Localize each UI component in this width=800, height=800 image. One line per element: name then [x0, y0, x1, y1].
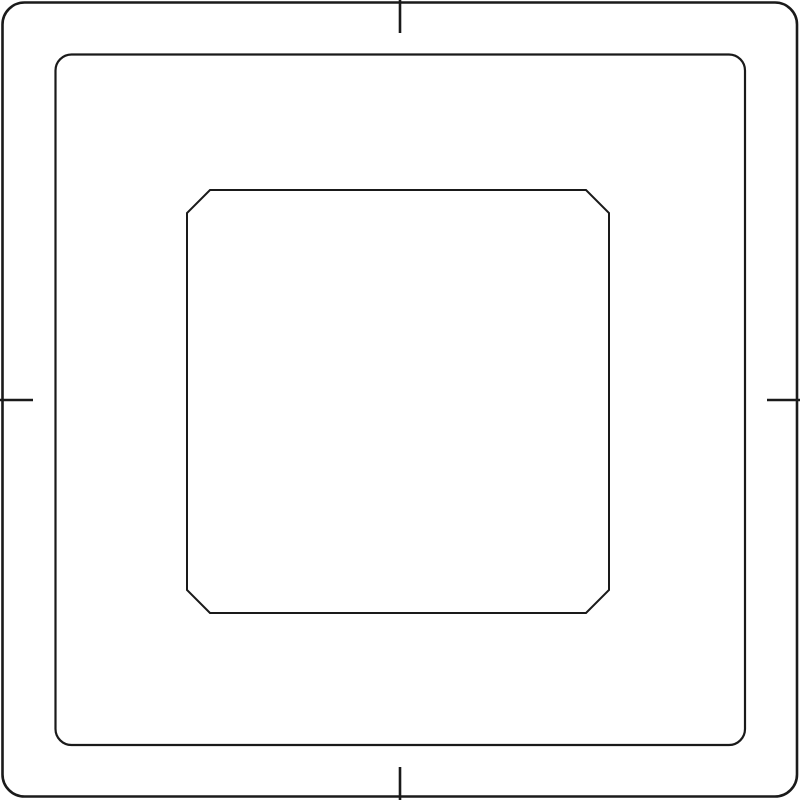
stencil-drawing: [0, 0, 800, 800]
stencil-canvas: [0, 0, 800, 800]
outer-frame-outline: [3, 3, 798, 797]
line-group: [0, 0, 800, 800]
center-chamfered-square-outline: [187, 190, 609, 613]
inner-frame-outline: [56, 55, 746, 746]
